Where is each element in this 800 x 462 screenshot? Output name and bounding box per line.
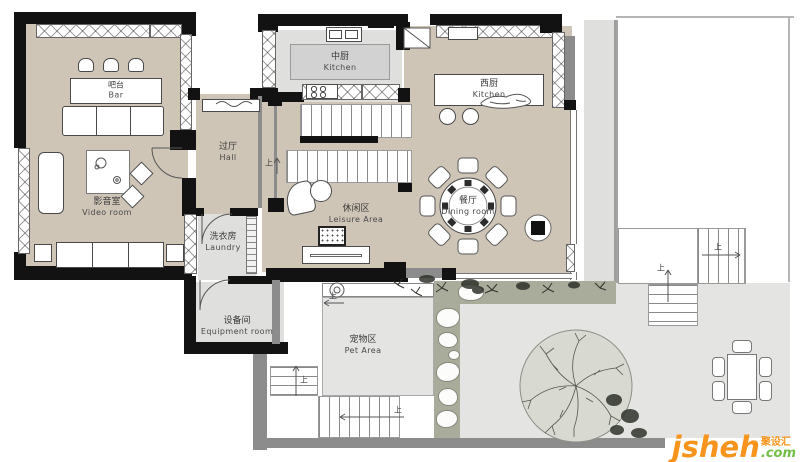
label-leisure-en: Leisure Area [329,215,384,225]
label-leisure-zh: 休闲区 [329,204,384,215]
watermark: jsheh 聚设汇 .com [672,433,796,460]
up-label-terrace-down: 上 [657,263,665,274]
up-label-pet: 上 [329,291,337,302]
up-label-stair-wide: 上 [394,405,402,416]
label-hall-zh: 过厅 [219,142,237,153]
label-video-en: Video room [82,208,132,218]
label-dining-zh: 餐厅 [441,196,494,207]
label-kitchen-mid: 中厨 Kitchen [324,52,357,72]
label-kitchen-west-zh: 西厨 [473,79,506,90]
label-dining-en: Dining room [441,207,494,217]
label-equipment-en: Equipment room [201,327,273,337]
label-laundry-zh: 洗衣房 [205,232,240,243]
label-pet-en: Pet Area [345,346,382,356]
label-equipment-room: 设备间 Equipment room [201,316,273,336]
stair-arrow-right [702,252,740,258]
stove-burners [311,86,325,97]
label-kitchen-west-en: Kitchen [473,90,506,100]
label-laundry-en: Laundry [205,243,240,253]
label-equipment-zh: 设备间 [201,316,273,327]
label-video-room: 影音室 Video room [82,197,132,217]
floor-lamp [525,215,551,241]
label-hall: 过厅 Hall [219,142,237,162]
up-label-stair-main: 上 [265,158,273,169]
door-arc-equipment [200,280,230,310]
stair-arrow-up [665,270,671,302]
label-video-zh: 影音室 [82,197,132,208]
label-hall-en: Hall [219,153,237,163]
watermark-tld: .com [761,448,796,460]
label-kitchen-mid-zh: 中厨 [324,52,357,63]
dining-chair [458,239,478,254]
label-kitchen-west: 西厨 Kitchen [473,79,506,99]
label-leisure-area: 休闲区 Leisure Area [329,204,384,224]
watermark-name: jsheh [672,435,760,460]
door-arc-video [152,148,182,178]
label-bar-zh: 吧台 [108,80,124,90]
plan-overlay [0,0,800,462]
dining-chair [501,196,516,216]
floor-plan: 吧台 Bar 影音室 Video room 过厅 Hall 洗衣房 Laundr… [0,0,800,462]
dining-chair [458,158,478,173]
label-dining-room: 餐厅 Dining room [441,196,494,216]
up-label-terrace-right: 上 [714,242,722,253]
door-arcs [152,28,430,310]
dining-chair [420,196,435,216]
label-laundry: 洗衣房 Laundry [205,232,240,252]
label-bar-en: Bar [108,90,124,100]
console-decor [216,102,252,107]
stair-arrow-up [274,158,280,174]
up-label-stair-small: 上 [300,375,308,386]
label-kitchen-mid-en: Kitchen [324,63,357,73]
label-pet-area: 宠物区 Pet Area [345,335,382,355]
label-bar: 吧台 Bar [108,80,124,99]
label-pet-zh: 宠物区 [345,335,382,346]
stair-arrow-up [293,366,299,396]
